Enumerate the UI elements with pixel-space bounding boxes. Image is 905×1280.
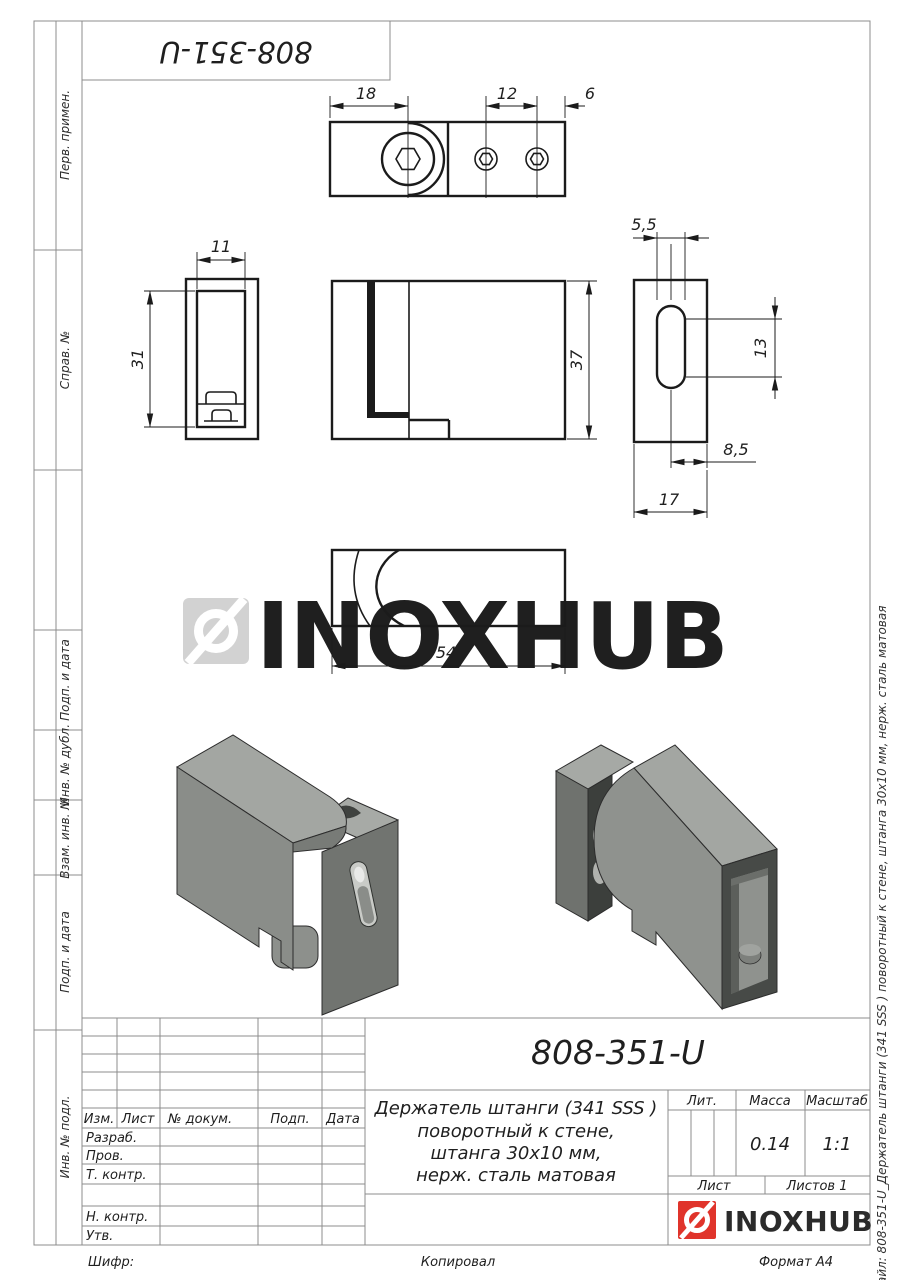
description-line-1: Держатель штанги (341 SSS ) <box>374 1098 658 1119</box>
row-nkontr: Н. контр. <box>86 1210 148 1225</box>
row-prov: Пров. <box>86 1149 124 1164</box>
top-view: 18 12 6 <box>330 84 595 198</box>
footer: Шифр: Копировал Формат А4 <box>88 1255 833 1270</box>
drawing-sheet: 808-351-U Перв. примен. Справ. № Подп. и… <box>0 0 905 1280</box>
dim-bottom-length: 54 <box>436 643 456 662</box>
strip-label-podp-data-2: Подп. и дата <box>58 911 72 993</box>
lit-label: Лит. <box>686 1094 717 1109</box>
row-utv: Утв. <box>86 1229 113 1244</box>
dim-top-width: 18 <box>356 84 376 103</box>
dim-front-height: 37 <box>567 349 586 370</box>
strip-label-vzam-inv: Взам. инв. № <box>58 797 72 878</box>
listov-label: Листов 1 <box>786 1179 848 1194</box>
massa-value: 0.14 <box>750 1134 790 1155</box>
footer-format: Формат А4 <box>759 1255 833 1270</box>
description-line-2: поворотный к стене, <box>417 1121 614 1142</box>
stamp-code: 808-351-U <box>160 35 313 69</box>
masshtab-label: Масштаб <box>806 1094 868 1109</box>
col-izm: Изм. <box>84 1112 115 1127</box>
strip-label-podp-data-1: Подп. и дата <box>58 639 72 721</box>
row-razrab: Разраб. <box>86 1131 137 1146</box>
massa-label: Масса <box>749 1094 790 1109</box>
right-side-view: 5,5 13 8,5 17 <box>631 215 782 518</box>
description-line-4: нерж. сталь матовая <box>416 1165 616 1186</box>
description-line-3: штанга 30х10 мм, <box>430 1143 601 1164</box>
strip-label-perv-primen: Перв. примен. <box>58 90 72 180</box>
masshtab-value: 1:1 <box>823 1134 852 1155</box>
strip-label-inv-podl: Инв. № подл. <box>58 1096 72 1179</box>
left-side-view: 11 31 <box>128 237 258 439</box>
title-block: Изм. Лист № докум. Подп. Дата Разраб. Пр… <box>82 1018 873 1245</box>
file-note-vertical: Файл: 808-351-U_Держатель штанги (341 SS… <box>875 606 889 1280</box>
front-view: 37 <box>332 281 597 439</box>
dim-left-width: 11 <box>211 237 231 256</box>
watermark-text: INOXHUB <box>256 583 728 690</box>
brand-text: INOXHUB <box>724 1205 873 1238</box>
col-list: Лист <box>121 1112 155 1127</box>
list-label: Лист <box>697 1179 731 1194</box>
brand-logo: INOXHUB <box>678 1201 873 1239</box>
dim-top-pitch: 12 <box>497 84 517 103</box>
strip-label-sprav-n: Справ. № <box>58 331 72 389</box>
dim-left-height: 31 <box>128 349 147 369</box>
col-podp: Подп. <box>270 1112 309 1127</box>
dim-side-slot-height: 13 <box>751 338 770 358</box>
drawing-canvas: 808-351-U Перв. примен. Справ. № Подп. и… <box>0 0 905 1280</box>
footer-kopiroval: Копировал <box>421 1255 495 1270</box>
iso-view-left <box>177 735 398 1015</box>
dim-side-offset: 8,5 <box>723 440 748 459</box>
col-data: Дата <box>325 1112 360 1127</box>
iso-view-right <box>556 745 777 1009</box>
row-tkontr: Т. контр. <box>86 1168 146 1183</box>
dim-side-slot-width: 5,5 <box>631 215 656 234</box>
doc-number: 808-351-U <box>531 1033 705 1072</box>
footer-shifr: Шифр: <box>88 1255 134 1270</box>
strip-label-inv-dubl: Инв. № дубл. <box>58 724 72 806</box>
watermark: INOXHUB <box>183 583 728 690</box>
col-doc: № докум. <box>167 1112 232 1127</box>
dim-side-width: 17 <box>659 490 680 509</box>
dim-top-edge: 6 <box>585 84 595 103</box>
